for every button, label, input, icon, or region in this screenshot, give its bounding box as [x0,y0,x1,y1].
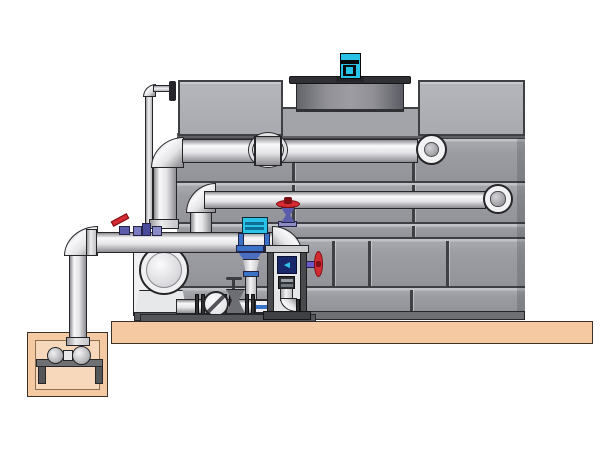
fan-motor-band [341,60,359,64]
instrument-stand-post [267,252,274,314]
elbow-bore [424,142,440,158]
inlet-pipe-vertical [153,163,177,221]
elbow-bore [490,191,505,206]
tower-top-right-tank [418,80,525,136]
panel-seam [412,226,415,237]
panel-seam [332,241,335,286]
hot-water-inlet-pipe [182,139,418,163]
solenoid-fitting [152,226,162,236]
riser-coupling [66,337,90,346]
return-elbow-facing-viewer [483,184,513,214]
concrete-slab [111,321,593,344]
fan-motor-face-inner [346,67,353,74]
pump-suction-cover-inner [146,252,182,288]
fan-cowl [296,83,404,112]
inlet-pipe-elbow [151,137,184,168]
tower-return-pipe [204,191,486,209]
sump-pump-body [72,346,91,365]
panel-seam [410,290,413,311]
level-display: ◄ [277,256,297,274]
solenoid-fitting [142,223,151,236]
ball-valve-body [119,226,130,235]
gate-valve-stem [232,280,235,290]
fan-motor [340,53,361,79]
butterfly-valve-actuator [242,217,268,234]
solenoid-fitting [133,226,142,236]
actuator-stripe [245,227,264,230]
panel-seam [368,241,371,286]
riser-pipe [69,252,87,345]
control-valve-top-flange [236,245,264,252]
diagram-canvas: ◄ [0,0,600,450]
sump-stand-leg [38,366,46,384]
side-valve-hub [316,261,321,267]
tower-top-left-tank [178,80,283,136]
actuator-stripe [245,222,264,225]
inlet-elbow-facing-viewer [416,134,447,165]
level-display-arrow-icon: ◄ [282,260,292,271]
sump-stand-leg [95,366,103,384]
pipe-sleeve [254,136,282,166]
header-flange [86,229,97,256]
panel-seam [446,241,449,286]
panel-slot [281,284,293,287]
panel-slot [281,279,293,282]
ball-valve-lever [111,213,130,227]
make-up-inlet-flange [169,81,176,101]
vent-valve-hub [284,197,292,204]
instrument-stand-base [263,311,311,320]
tower-right-edge-shade [517,137,525,311]
sump-pump-motor [47,347,64,364]
